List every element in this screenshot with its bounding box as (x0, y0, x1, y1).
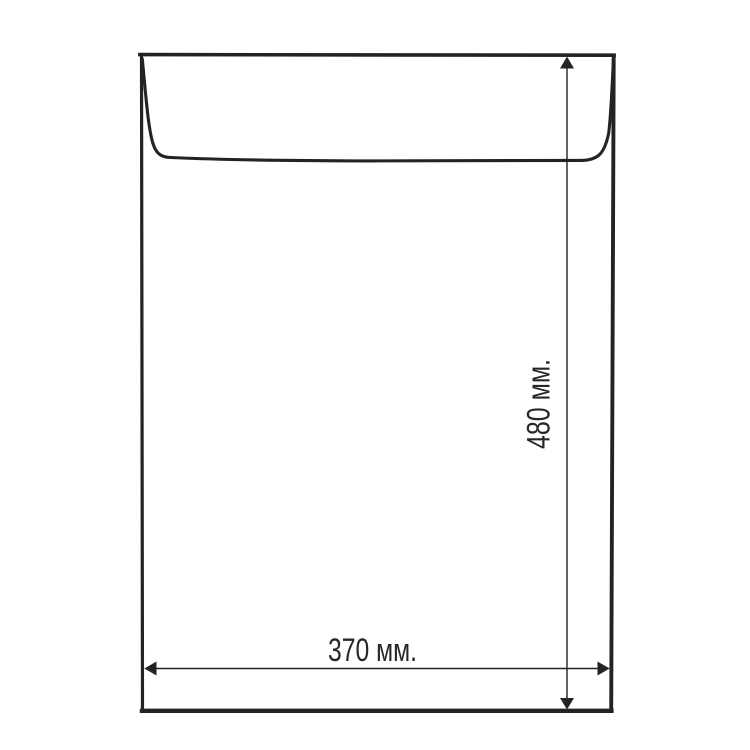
svg-text:480 мм.: 480 мм. (520, 359, 557, 449)
svg-text:370 мм.: 370 мм. (328, 631, 417, 668)
